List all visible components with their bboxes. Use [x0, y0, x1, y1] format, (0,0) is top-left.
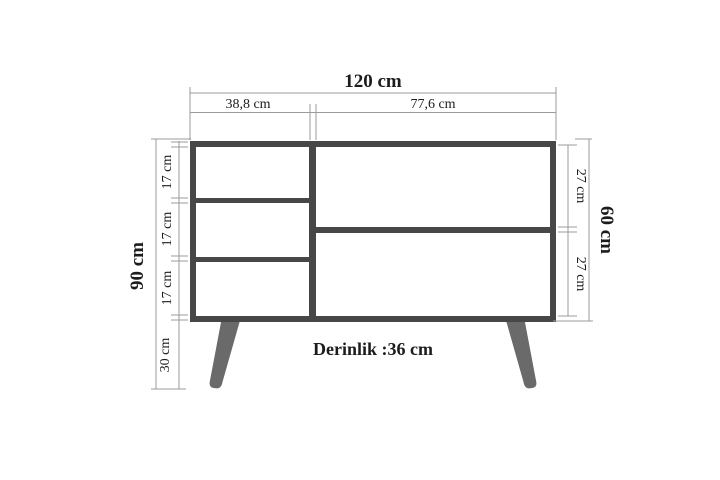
cabinet-body: [193, 143, 553, 320]
label-left-compartment-3: 17 cm: [160, 271, 175, 306]
diagram-canvas: 120 cm 38,8 cm 77,6 cm 90 cm 17 cm 17 cm…: [0, 0, 720, 480]
label-body-height: 60 cm: [596, 206, 617, 254]
label-left-section-width: 38,8 cm: [225, 97, 270, 112]
label-right-compartment-2: 27 cm: [573, 257, 588, 292]
label-depth: Derinlik :36 cm: [313, 339, 433, 359]
label-total-width: 120 cm: [344, 71, 402, 92]
label-total-height: 90 cm: [127, 242, 148, 290]
left-leg: [210, 317, 241, 388]
label-leg-height: 30 cm: [158, 338, 173, 373]
label-left-compartment-2: 17 cm: [160, 212, 175, 247]
label-left-compartment-1: 17 cm: [160, 155, 175, 190]
right-leg: [505, 317, 536, 388]
label-right-compartment-1: 27 cm: [573, 169, 588, 204]
furniture-dimension-diagram: 120 cm 38,8 cm 77,6 cm 90 cm 17 cm 17 cm…: [0, 0, 720, 480]
label-right-section-width: 77,6 cm: [410, 97, 455, 112]
